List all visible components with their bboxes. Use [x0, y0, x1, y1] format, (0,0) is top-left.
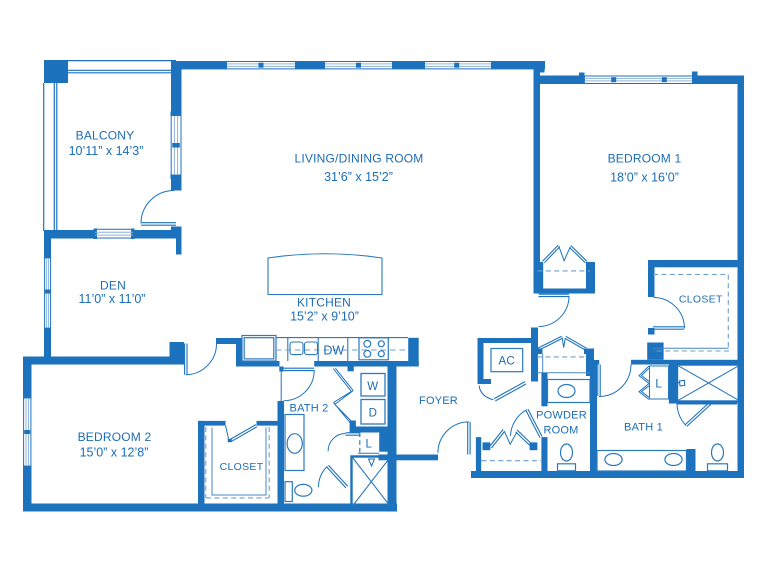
- svg-text:BATH 1: BATH 1: [624, 422, 663, 434]
- svg-text:15’2” x 9’10”: 15’2” x 9’10”: [290, 310, 359, 324]
- svg-text:L: L: [365, 438, 372, 450]
- svg-text:L: L: [655, 378, 662, 390]
- svg-text:AC: AC: [499, 355, 515, 367]
- svg-text:15’0” x 12’8”: 15’0” x 12’8”: [80, 446, 149, 460]
- svg-text:10’11” x 14’3”: 10’11” x 14’3”: [69, 144, 144, 158]
- svg-text:CLOSET: CLOSET: [220, 461, 264, 473]
- svg-text:DEN: DEN: [100, 279, 126, 293]
- svg-text:POWDER: POWDER: [536, 410, 587, 422]
- svg-text:BATH 2: BATH 2: [290, 403, 329, 415]
- svg-text:W: W: [367, 381, 378, 393]
- svg-text:FOYER: FOYER: [419, 395, 458, 407]
- svg-text:18’0” x 16’0”: 18’0” x 16’0”: [610, 171, 679, 185]
- svg-text:BEDROOM 1: BEDROOM 1: [608, 152, 682, 166]
- svg-text:LIVING/DINING ROOM: LIVING/DINING ROOM: [295, 152, 424, 166]
- svg-text:D: D: [369, 407, 378, 419]
- svg-text:DW: DW: [323, 343, 344, 357]
- svg-text:11’0” x 11’0”: 11’0” x 11’0”: [79, 292, 146, 306]
- svg-text:ROOM: ROOM: [543, 424, 578, 436]
- svg-text:CLOSET: CLOSET: [679, 293, 723, 305]
- svg-text:BEDROOM 2: BEDROOM 2: [78, 430, 152, 444]
- svg-text:KITCHEN: KITCHEN: [297, 296, 351, 310]
- svg-text:31’6” x 15’2”: 31’6” x 15’2”: [324, 170, 393, 184]
- svg-text:BALCONY: BALCONY: [76, 129, 135, 143]
